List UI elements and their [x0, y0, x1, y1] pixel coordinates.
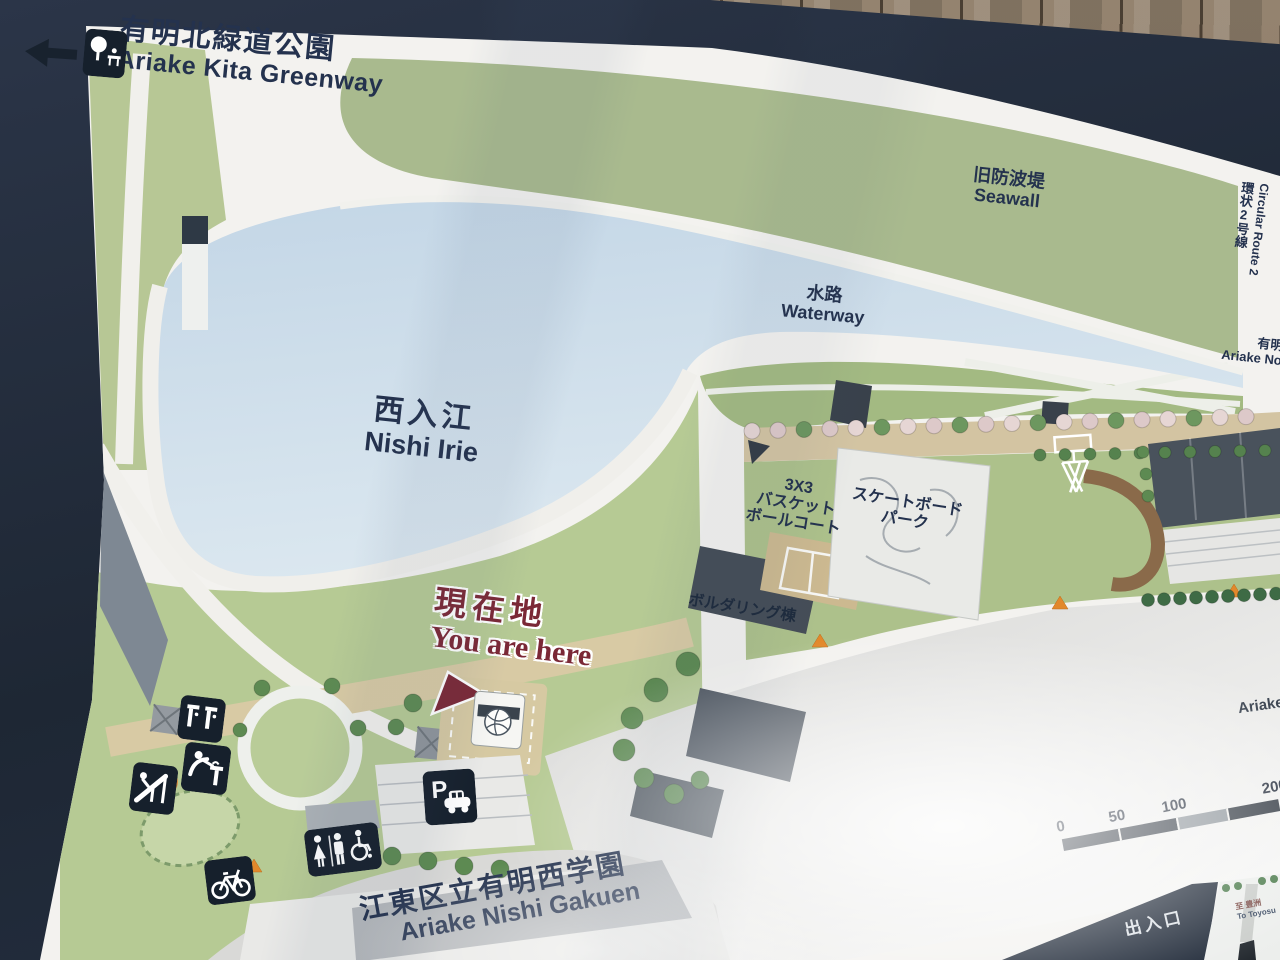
- slide-icon: [128, 761, 179, 815]
- skatepark-area: [828, 448, 990, 620]
- bridge: [830, 380, 872, 428]
- round-plaza: [244, 692, 356, 804]
- park-map-sign-photo: 有明北緑道公園 Ariake Kita Greenway 旧防波堤 Seawal…: [0, 0, 1280, 960]
- water-tap-icon: [176, 694, 226, 743]
- direction-arrow-icon: [21, 34, 81, 72]
- toilet-icon: [303, 822, 382, 878]
- waterway-label: 水路 Waterway: [780, 280, 867, 327]
- ball-court-icon: [470, 690, 527, 750]
- park-facility-icon: [82, 28, 128, 78]
- parking-icon: P: [422, 768, 478, 825]
- bicycle-parking-icon: [203, 855, 256, 906]
- drinking-fountain-icon: [180, 741, 232, 795]
- seawall-label: 旧防波堤 Seawall: [970, 164, 1046, 212]
- large-building: [1148, 428, 1280, 528]
- nishi-irie-label: 西入江 Nishi Irie: [363, 392, 483, 467]
